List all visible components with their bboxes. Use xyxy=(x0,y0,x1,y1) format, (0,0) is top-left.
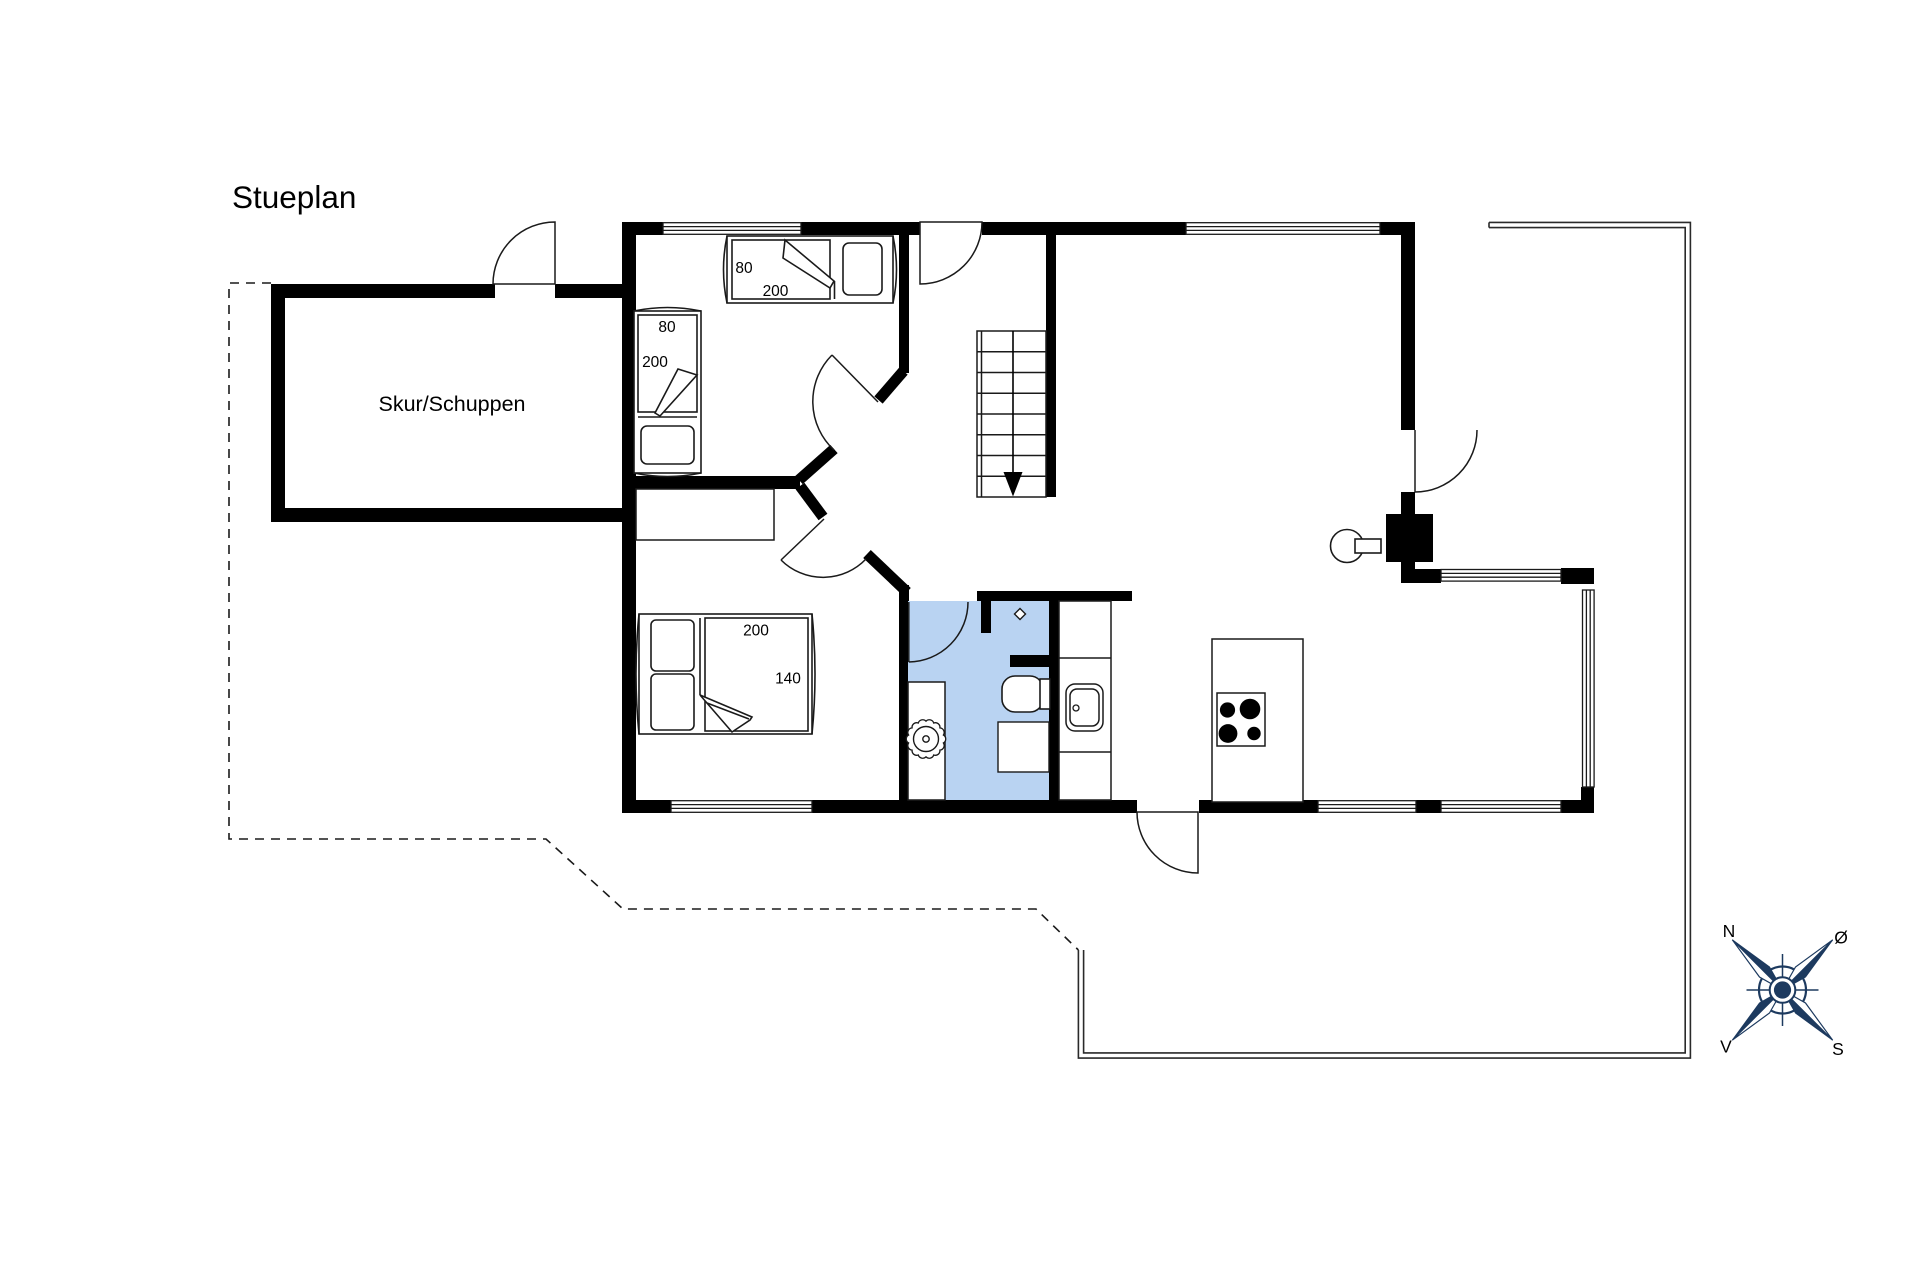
svg-text:V: V xyxy=(1720,1037,1732,1057)
svg-text:80: 80 xyxy=(658,319,676,336)
svg-text:S: S xyxy=(1832,1039,1844,1059)
svg-text:140: 140 xyxy=(775,671,801,688)
svg-text:80: 80 xyxy=(735,260,753,277)
svg-text:200: 200 xyxy=(642,354,668,371)
svg-text:N: N xyxy=(1723,921,1736,941)
svg-text:Stueplan: Stueplan xyxy=(232,179,356,215)
svg-text:Ø: Ø xyxy=(1834,928,1848,948)
svg-text:200: 200 xyxy=(763,283,789,300)
svg-text:200: 200 xyxy=(743,623,769,640)
svg-text:Skur/Schuppen: Skur/Schuppen xyxy=(378,392,525,416)
